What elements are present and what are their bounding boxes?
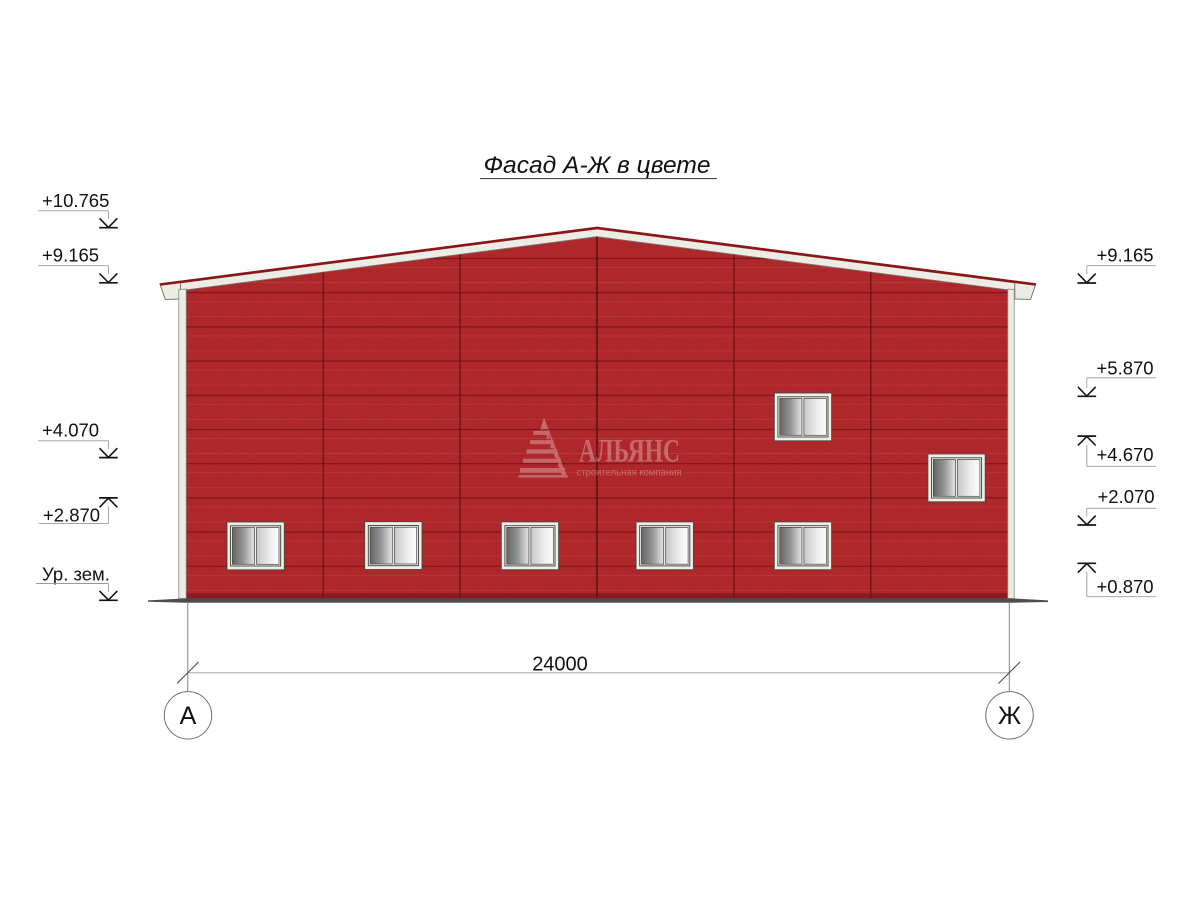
svg-text:А: А (180, 702, 197, 730)
svg-text:+9.165: +9.165 (42, 245, 99, 266)
svg-text:+5.870: +5.870 (1097, 358, 1154, 379)
svg-text:Ур. зем.: Ур. зем. (42, 564, 110, 585)
svg-text:АЛЬЯНС: АЛЬЯНС (579, 434, 680, 470)
svg-text:+2.070: +2.070 (1098, 486, 1155, 507)
svg-text:строительная компания: строительная компания (577, 468, 682, 479)
svg-text:+4.670: +4.670 (1097, 444, 1154, 465)
svg-text:+9.165: +9.165 (1097, 245, 1154, 266)
svg-text:+2.870: +2.870 (43, 505, 100, 526)
svg-text:+4.070: +4.070 (42, 420, 99, 441)
svg-text:+0.870: +0.870 (1097, 576, 1154, 597)
svg-text:24000: 24000 (532, 653, 588, 675)
svg-text:Фасад А-Ж в цвете: Фасад А-Ж в цвете (484, 152, 711, 179)
svg-text:+10.765: +10.765 (42, 190, 109, 211)
svg-text:Ж: Ж (998, 702, 1021, 730)
